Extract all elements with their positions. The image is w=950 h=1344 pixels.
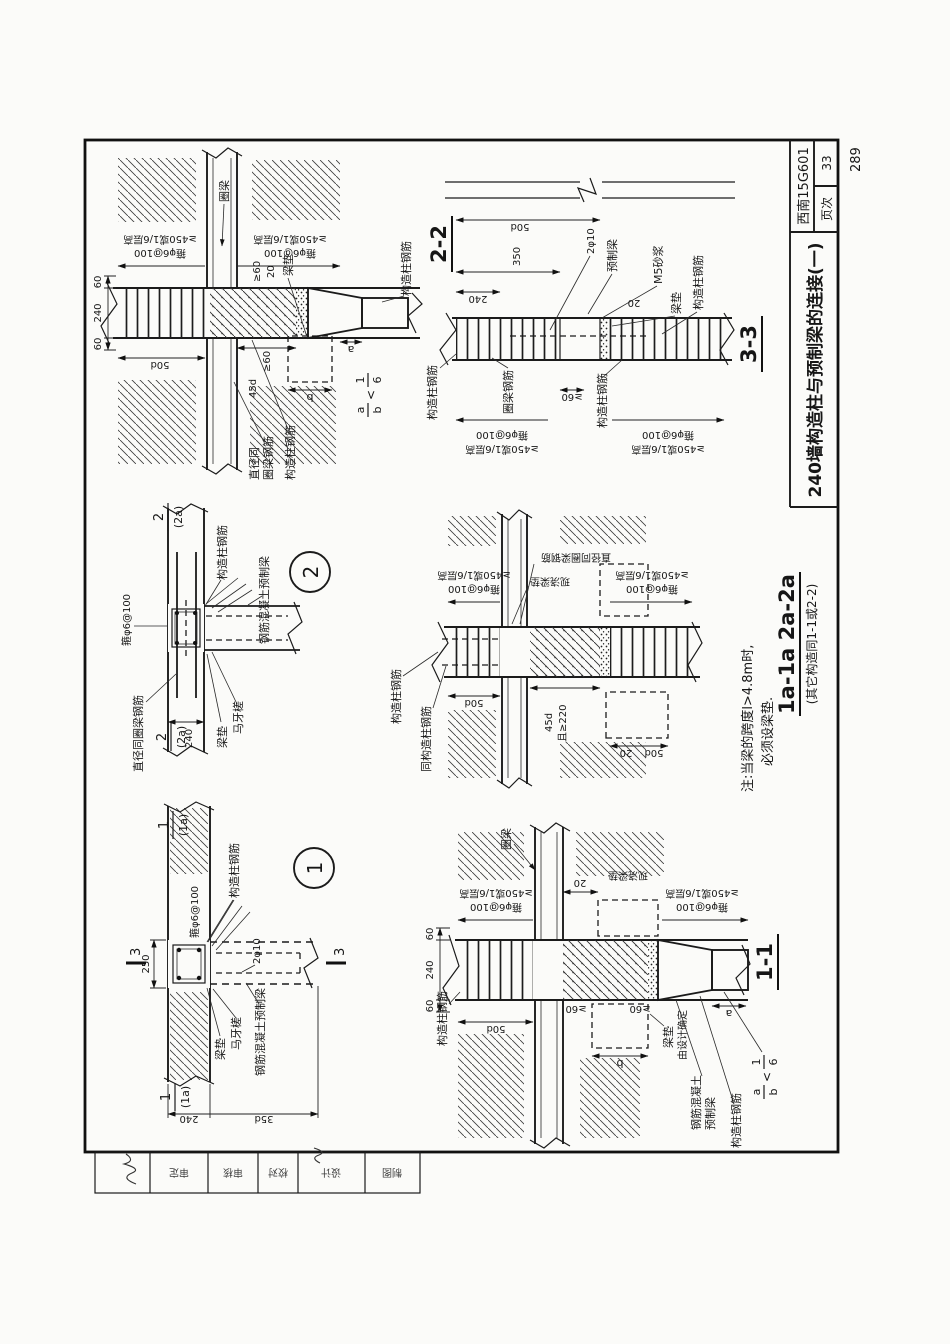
dim-zone: ≥450或1/6层高	[631, 443, 705, 456]
label-column-rebar: 构造柱钢筋	[399, 241, 413, 296]
pad-dashed-outline	[288, 336, 332, 382]
label-ring-beam: 圈梁	[499, 828, 513, 850]
label-beam-pad: 梁垫	[213, 1038, 227, 1060]
beam-ladder	[362, 298, 408, 328]
dim-60: 60	[425, 1000, 436, 1013]
precast-beam-dashed	[210, 942, 318, 984]
landscape-drawing: 审定 审核 校对 设计 制图 240墙构造柱与预制梁的连接(一) 西南15G60…	[0, 0, 950, 1344]
dim-240: 240	[425, 960, 436, 979]
view-section-2-2: 60 240 60 箍φ6@100 ≥450或1/6层高 箍φ6@100 ≥45…	[93, 148, 452, 480]
dim-50d: 50d	[486, 1023, 505, 1034]
slope-ratio-note: a b < 1 6	[354, 373, 384, 417]
scanned-drawing-page: 审定 审核 校对 设计 制图 240墙构造柱与预制梁的连接(一) 西南15G60…	[0, 0, 950, 1344]
dim-zone: ≥450或1/6层高	[253, 233, 327, 246]
view-title-1a-2a: 1a-1a 2a-2a	[775, 574, 799, 714]
precast-beam-section	[456, 318, 560, 360]
label-beam-pad: 梁垫	[215, 726, 229, 748]
label-rc-precast-beam: 钢筋混凝土预制梁	[257, 556, 271, 644]
view-detail-2: 2 (2a) 2 (2a) 240 直径同圈梁钢筋 箍φ6@100 构造柱钢筋 …	[120, 503, 330, 772]
label-cast-pad: 现浇梁垫	[608, 869, 648, 882]
atlas-number: 西南15G601	[796, 147, 812, 224]
dim-zone: ≥450或1/6层高	[615, 569, 689, 582]
stirrup-zone	[448, 627, 500, 677]
view-section-3-3: 240 350 50d 2φ10 预制梁 M5砂浆 梁垫 20 构造柱钢筋 构造…	[425, 178, 762, 456]
brick-hatch	[252, 160, 340, 220]
svg-text:a: a	[750, 1089, 763, 1096]
view-section-1-1: 60 240 60 圈梁 箍φ6@100 ≥450或1/6层高 箍φ6@100 …	[425, 823, 780, 1148]
break-symbol	[163, 504, 208, 514]
dim-a: a	[726, 1007, 733, 1020]
dim-20: 20	[620, 747, 633, 758]
dim-zone: ≥450或1/6层高	[459, 887, 533, 900]
view-title-1-1: 1-1	[753, 943, 777, 981]
label-rc-precast-1: 钢筋混凝土	[689, 1075, 703, 1130]
detail-1-number: 1	[303, 862, 327, 875]
dim-240: 240	[468, 293, 487, 304]
label-beam-pad: 梁垫	[281, 254, 295, 276]
label-same-dia-ring-rebar: 直径同圈梁钢筋	[131, 695, 145, 772]
svg-text:a: a	[354, 407, 367, 414]
dim-ge60: ≥60	[561, 391, 582, 402]
approval-strip: 审定 审核 校对 设计 制图	[95, 1148, 420, 1193]
svg-text:2: 2	[152, 513, 167, 521]
pad-stipple	[296, 288, 308, 338]
break-symbol	[202, 148, 242, 158]
svg-text:<: <	[760, 1072, 774, 1082]
label-same-dia-1: 直径同	[247, 447, 261, 480]
dim-60: 60	[93, 276, 104, 289]
dim-35d: 35d	[254, 1113, 273, 1124]
wall-hatch	[170, 992, 208, 1080]
wall-edge-lines	[445, 182, 735, 198]
note: 注:当梁的跨度l>4.8m时, 必须设梁垫.	[740, 645, 776, 792]
stirrup-zone	[610, 627, 692, 677]
dim-a: a	[348, 343, 355, 356]
svg-text:6: 6	[767, 1059, 780, 1066]
dim-zone: ≥450或1/6层高	[123, 233, 197, 246]
approval-cell: 制图	[382, 1166, 402, 1179]
stirrup-zone	[118, 288, 205, 338]
dim-stirrup: 箍φ6@100	[470, 901, 522, 914]
dim-zone: ≥450或1/6层高	[437, 569, 511, 582]
approval-cell: 审定	[169, 1166, 189, 1179]
view-title-2-2: 2-2	[427, 225, 451, 263]
label-precast-beam: 预制梁	[605, 239, 619, 272]
label-rc-precast-2: 预制梁	[703, 1097, 717, 1130]
dim-ge60: ≥60	[252, 261, 263, 282]
break-symbol	[432, 622, 448, 682]
break-symbol	[202, 464, 242, 474]
approval-cell: 校对	[268, 1166, 288, 1179]
svg-text:2: 2	[155, 733, 170, 741]
note-line-1: 注:当梁的跨度l>4.8m时,	[740, 645, 756, 792]
break-symbol	[530, 1138, 570, 1148]
dim-50d: 50d	[150, 359, 169, 370]
label-tooth-joint: 马牙槎	[229, 1017, 243, 1050]
brick-hatch	[580, 1058, 640, 1138]
section-3-label: 3	[333, 948, 348, 956]
dim-60: 60	[425, 928, 436, 941]
label-column-rebar: 构造柱钢筋	[227, 843, 241, 898]
label-same-as-column-rebar: 同构造柱钢筋	[419, 706, 433, 772]
pad-stipple	[600, 627, 610, 677]
brick-hatch	[458, 832, 524, 880]
break-symbol	[578, 178, 596, 202]
precast-beam-edges	[204, 606, 300, 650]
cast-in-place-core	[210, 288, 296, 338]
dim-ge220: 且≥220	[557, 705, 569, 742]
dim-stirrup: 箍φ6@100	[134, 247, 186, 260]
signature-scribble	[124, 1154, 136, 1184]
svg-text:1: 1	[354, 377, 367, 384]
stirrup-zone	[458, 940, 533, 1000]
brick-hatch	[448, 710, 496, 778]
dim-45d: 45d	[248, 379, 259, 398]
dim-50d: 50d	[644, 747, 663, 758]
approval-cell: 设计	[321, 1166, 341, 1179]
svg-text:1: 1	[157, 821, 172, 829]
label-mortar: M5砂浆	[651, 246, 665, 285]
view-subtitle-1a-2a: (其它构造同1-1或2-2)	[804, 584, 819, 705]
slope-ratio-note: a b < 1 6	[750, 1055, 780, 1099]
note-line-2: 必须设梁垫.	[760, 697, 776, 766]
label-2phi10: 2φ10	[586, 228, 597, 254]
dim-b: b	[616, 1057, 623, 1070]
pad-dashed-outline	[606, 692, 668, 738]
title-block: 240墙构造柱与预制梁的连接(一) 西南15G601 页次 33	[790, 140, 838, 507]
dim-20: 20	[266, 265, 277, 278]
dim-45d: 45d	[544, 713, 555, 732]
dim-ge60: ≥60	[565, 1003, 586, 1014]
label-stirrup: 箍φ6@100	[188, 886, 201, 938]
page-number: 289	[849, 147, 864, 172]
cast-in-place-core	[530, 627, 600, 677]
label-tooth-joint: 马牙槎	[231, 701, 245, 734]
dim-b: b	[306, 391, 313, 404]
dim-240: 240	[179, 1113, 198, 1124]
tapered-beam-end	[308, 288, 362, 338]
label-beam-pad: 梁垫	[669, 292, 683, 314]
svg-text:1: 1	[159, 1093, 174, 1101]
break-symbol	[288, 602, 302, 654]
svg-text:(2a): (2a)	[172, 506, 185, 528]
tapered-beam-end	[658, 940, 712, 1000]
brick-hatch	[560, 516, 646, 544]
page-index-value: 33	[820, 155, 834, 170]
dim-zone: ≥450或1/6层高	[665, 887, 739, 900]
svg-text:<: <	[364, 390, 378, 400]
label-column-rebar: 构造柱钢筋	[729, 1093, 743, 1148]
label-column-rebar: 构造柱钢筋	[425, 365, 439, 420]
label-column-rebar: 构造柱钢筋	[389, 669, 403, 724]
svg-text:b: b	[371, 406, 384, 413]
sheet-title: 240墙构造柱与预制梁的连接(一)	[805, 242, 826, 497]
svg-text:6: 6	[371, 377, 384, 384]
label-ring-beam-rebar: 圈梁钢筋	[501, 370, 515, 414]
label-column-rebar: 构造柱钢筋	[691, 255, 705, 310]
label-pad: 梁垫	[661, 1026, 675, 1048]
approval-cell: 审核	[223, 1166, 243, 1179]
view-detail-1: 3 3 1 (1a) 1 (1a) 250 240 35d 箍φ6@100 构造…	[126, 802, 348, 1124]
dim-20: 20	[628, 297, 641, 308]
svg-text:b: b	[767, 1088, 780, 1095]
brick-hatch	[448, 516, 496, 546]
pad-dashed-outline	[598, 900, 658, 936]
dim-stirrup: 箍φ6@100	[642, 429, 694, 442]
svg-text:1: 1	[750, 1059, 763, 1066]
label-2phi10: 2φ10	[252, 938, 263, 964]
dim-stirrup: 箍φ6@100	[626, 583, 678, 596]
break-symbol	[440, 313, 456, 365]
signature-scribble	[314, 1148, 322, 1163]
view-title-3-3: 3-3	[737, 325, 761, 363]
dim-50d: 50d	[464, 697, 483, 708]
page-index-label: 页次	[820, 197, 834, 221]
cast-in-place-core	[563, 940, 648, 1000]
label-column-rebar: 构造柱钢筋	[595, 373, 609, 428]
svg-text:(1a): (1a)	[179, 1086, 192, 1108]
dim-stirrup: 箍φ6@100	[676, 901, 728, 914]
detail-2-number: 2	[299, 566, 323, 579]
dim-stirrup: 箍φ6@100	[476, 429, 528, 442]
break-symbol	[530, 823, 570, 833]
dim-50d: 50d	[510, 221, 529, 232]
stirrup-zone	[608, 318, 726, 360]
dim-stirrup: 箍φ6@100	[448, 583, 500, 596]
dim-250: 250	[141, 954, 152, 973]
label-ring-beam: 圈梁	[217, 180, 231, 202]
dim-350: 350	[512, 247, 523, 266]
label-column-rebar: 构造柱钢筋	[215, 525, 229, 580]
label-stirrup: 箍φ6@100	[120, 594, 133, 646]
dim-240: 240	[93, 303, 104, 322]
dim-60: 60	[93, 338, 104, 351]
beam-ladder	[712, 950, 748, 990]
brick-hatch	[118, 158, 196, 222]
svg-text:(1a): (1a)	[177, 814, 190, 836]
brick-hatch	[458, 1034, 524, 1138]
label-pad-by-design: 由设计确定	[676, 1010, 689, 1060]
break-symbol	[408, 293, 422, 333]
label-same-dia-2: 圈梁钢筋	[261, 436, 275, 480]
label-column-rebar: 构造柱钢筋	[435, 991, 449, 1046]
dim-zone: ≥450或1/6层高	[465, 443, 539, 456]
label-cast-pad: 现浇梁垫	[530, 575, 570, 588]
brick-hatch	[118, 380, 196, 464]
label-same-dia-ring-rebar: 直径同圈梁钢筋	[541, 551, 611, 564]
dim-240: 240	[184, 729, 195, 748]
pad-stipple	[648, 940, 658, 1000]
dim-20: 20	[574, 877, 587, 888]
label-rc-precast-beam: 钢筋混凝土预制梁	[253, 988, 267, 1076]
pad-stipple	[600, 318, 608, 360]
